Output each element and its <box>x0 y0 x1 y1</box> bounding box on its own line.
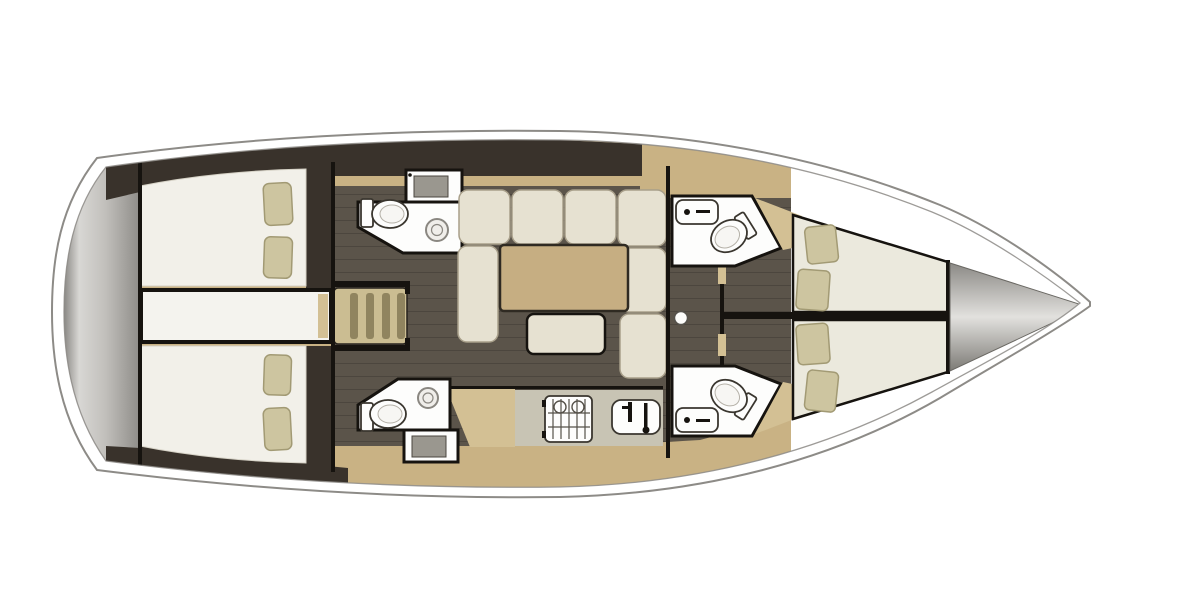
bulkhead <box>331 162 335 472</box>
saloon-table <box>500 245 628 311</box>
shower-drain-icon <box>418 388 438 408</box>
bulkhead <box>138 162 142 470</box>
mast-icon <box>675 312 688 325</box>
floorplan-stage <box>0 0 1201 600</box>
toilet-icon <box>361 199 408 228</box>
sofa-chaise-cushion <box>458 246 498 342</box>
sofa-corner-cushion <box>618 190 666 246</box>
shower-drain-icon <box>426 219 448 241</box>
berth-divider <box>793 312 948 320</box>
pillow <box>263 407 292 450</box>
pillow <box>804 224 839 264</box>
sink-icon <box>612 400 660 434</box>
galley <box>446 386 663 447</box>
pillow <box>796 323 831 365</box>
engine-compartment <box>141 290 331 342</box>
pillow <box>263 237 292 279</box>
pillow <box>263 182 293 225</box>
aft-cabin-port <box>140 166 333 288</box>
bow-bulkhead <box>946 260 950 374</box>
sofa-back-cushion <box>512 190 563 244</box>
pillow <box>804 370 839 413</box>
sofa-side-cushion <box>620 314 666 378</box>
stove-icon <box>542 396 592 442</box>
pillow <box>796 269 831 311</box>
yacht-floorplan <box>0 0 1201 600</box>
aft-cabin-starboard <box>140 346 333 482</box>
bulkhead <box>666 166 670 458</box>
companionway-stairs <box>332 281 410 351</box>
sofa-back-cushion <box>459 190 510 244</box>
pillow <box>263 355 291 396</box>
sofa-back-cushion <box>565 190 616 244</box>
ottoman-bench <box>527 314 605 354</box>
